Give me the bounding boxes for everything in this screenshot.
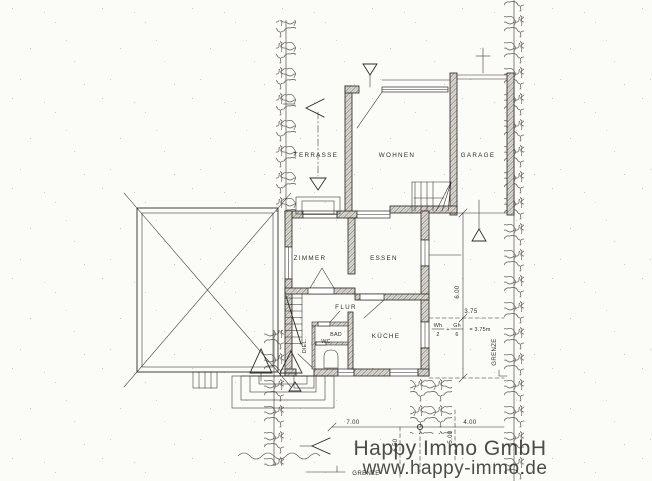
essen-north-window <box>357 211 390 218</box>
formula-plus: + <box>446 327 449 333</box>
wohnen-north-window <box>382 87 448 92</box>
paper-texture <box>0 0 652 481</box>
watermark: Happy Immo GmbH www.happy-immo.de <box>353 437 547 479</box>
boundary-hedge-right <box>504 0 524 481</box>
watermark-url: www.happy-immo.de <box>362 458 548 479</box>
label-flur: FLUR <box>335 304 357 311</box>
formula-denominator-1: 2 <box>436 332 439 338</box>
scanned-floor-plan-page: TERRASSE WOHNEN GARAGE ZIMMER ESSEN FLUR… <box>0 0 652 481</box>
dim-east-setback: 3.75 <box>464 309 478 315</box>
formula-numerator-2: Gh <box>453 323 461 329</box>
label-grenze-east: GRENZE <box>492 338 498 365</box>
zimmer-north-window <box>303 211 337 218</box>
bad-south-window <box>338 369 354 376</box>
label-zimmer: ZIMMER <box>294 255 327 262</box>
essen-east-window <box>421 240 429 266</box>
formula-numerator-1: Wh <box>434 323 443 329</box>
zimmer-essen-wall <box>348 218 355 274</box>
label-kueche: KÜCHE <box>372 332 401 340</box>
watermark-company: Happy Immo GmbH <box>353 437 546 460</box>
label-essen: ESSEN <box>370 255 398 262</box>
zimmer-west-window <box>285 247 292 279</box>
kueche-west-wall <box>348 312 353 369</box>
dim-south-left: 7.00 <box>346 420 360 426</box>
label-wc: WC <box>321 339 330 345</box>
bad-west-wall <box>312 326 315 369</box>
kueche-south-window <box>390 369 418 376</box>
label-wohnen: WOHNEN <box>379 152 415 159</box>
label-garage: GARAGE <box>461 152 496 159</box>
label-diele: DIEL. <box>302 339 308 353</box>
shrubs-southeast <box>410 378 452 434</box>
formula-denominator-2: 6 <box>455 332 458 338</box>
dim-east-length: 6.00 <box>455 285 461 299</box>
label-terrasse: TERRASSE <box>294 152 338 159</box>
formula-result: = 3.75m <box>469 327 490 333</box>
floor-plan-drawing: TERRASSE WOHNEN GARAGE ZIMMER ESSEN FLUR… <box>0 0 652 481</box>
kueche-east-window <box>421 322 429 348</box>
label-bad: BAD <box>330 332 342 338</box>
dim-south-right: 4.00 <box>463 420 477 426</box>
